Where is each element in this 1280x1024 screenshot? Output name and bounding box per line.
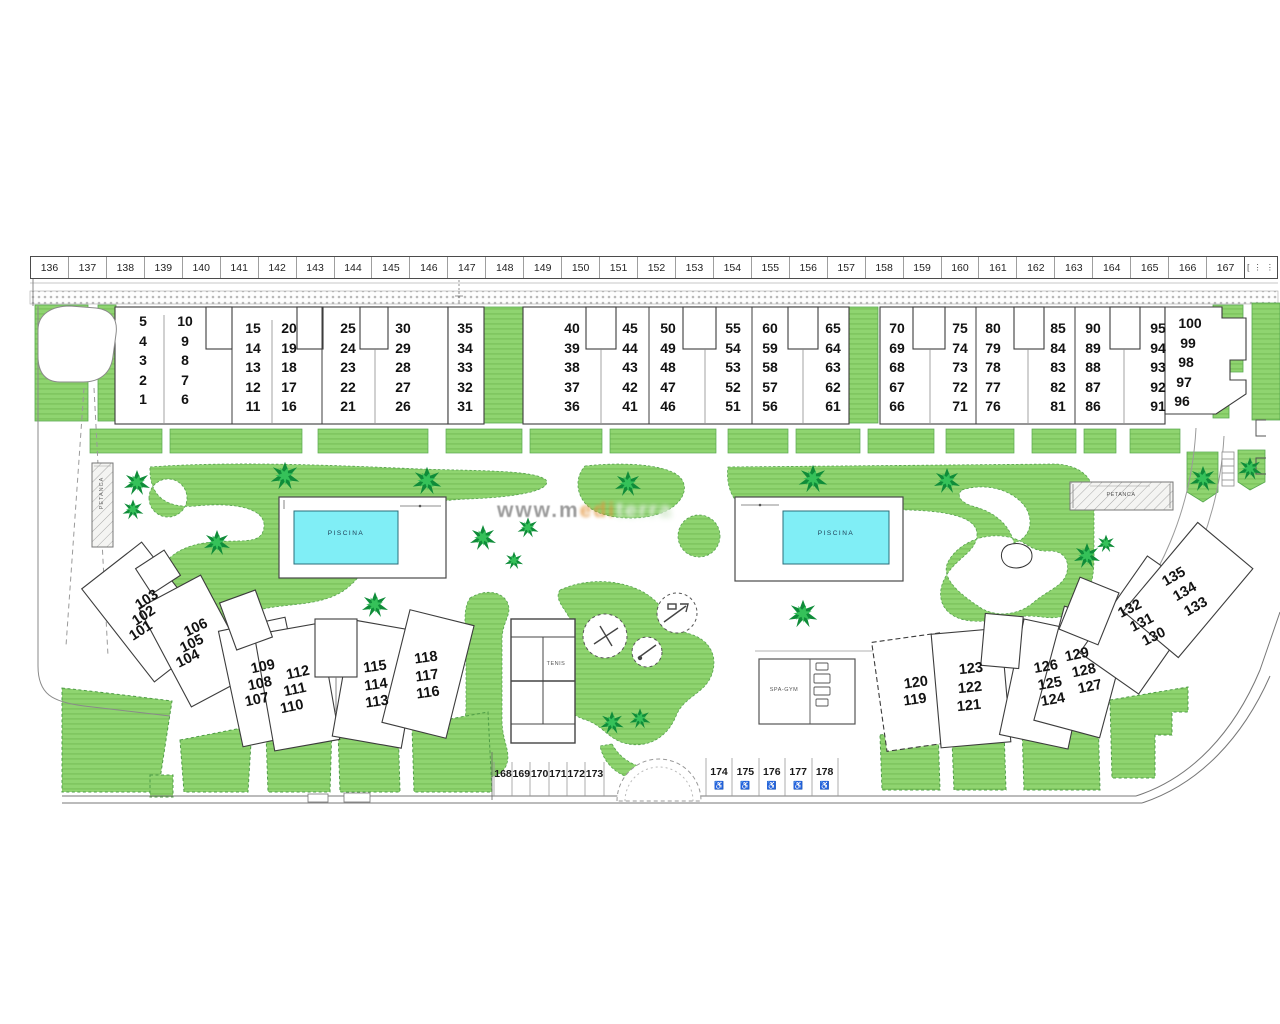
plot-number: 64 (813, 339, 853, 359)
plot-number: 9 (165, 332, 205, 352)
plot-number: 70 (877, 319, 917, 339)
plot-number: 42 (610, 378, 650, 398)
petanca-left-label: PETANCA (99, 458, 105, 528)
tennis-label: TENIS (531, 661, 581, 667)
ruler-cell: 144 (335, 257, 373, 278)
ruler-cell: 141 (221, 257, 259, 278)
ruler-end-marks: [ ⋮ ⋮ (1245, 256, 1278, 279)
plot-number-column: 6564636261 (813, 319, 853, 417)
plot-number: 87 (1073, 378, 1113, 398)
plot-number: 14 (233, 339, 273, 359)
ruler-cell: 149 (524, 257, 562, 278)
ruler-cell: 161 (979, 257, 1017, 278)
ruler-cell: 165 (1131, 257, 1169, 278)
site-plan-page: 1361371381391401411421431441451461471481… (0, 0, 1280, 1024)
plot-number: 54 (713, 339, 753, 359)
plot-number: 97 (1158, 373, 1210, 393)
plot-number: 96 (1154, 392, 1210, 412)
plot-number: 13 (233, 358, 273, 378)
plot-number: 68 (877, 358, 917, 378)
plot-number: 16 (269, 397, 309, 417)
plot-number-column: 3534333231 (445, 319, 485, 417)
plot-number: 15 (233, 319, 273, 339)
text-layer: 1361371381391401411421431441451461471481… (0, 0, 1280, 1024)
plot-number: 57 (750, 378, 790, 398)
ruler-cell: 155 (752, 257, 790, 278)
plot-number: 1 (123, 390, 163, 410)
plot-number-column: 1514131211 (233, 319, 273, 417)
plot-number: 10 (165, 312, 205, 332)
plot-number-column: 6059585756 (750, 319, 790, 417)
plot-number-column: 8079787776 (973, 319, 1013, 417)
plot-number: 33 (445, 358, 485, 378)
plot-number: 8 (165, 351, 205, 371)
watermark-part2: edi (580, 499, 616, 522)
plot-number: 49 (648, 339, 688, 359)
plot-number: 36 (552, 397, 592, 417)
plot-number: 61 (813, 397, 853, 417)
plot-number: 47 (648, 378, 688, 398)
plot-number: 7 (165, 371, 205, 391)
ruler-cell: 158 (866, 257, 904, 278)
parking-number: 177 (785, 766, 811, 778)
ruler-cell: 137 (69, 257, 107, 278)
plot-number-column: 9089888786 (1073, 319, 1113, 417)
plot-number: 19 (269, 339, 309, 359)
plot-number-column: 5049484746 (648, 319, 688, 417)
plot-number-column: 8584838281 (1038, 319, 1078, 417)
fan-plot-number: 121 (946, 696, 991, 717)
ruler-cell: 139 (145, 257, 183, 278)
ruler-cell: 152 (638, 257, 676, 278)
plot-number: 82 (1038, 378, 1078, 398)
plot-number: 45 (610, 319, 650, 339)
parking-number: 178 (812, 766, 838, 778)
plot-number: 66 (877, 397, 917, 417)
plot-number-column: 54321 (123, 312, 163, 410)
plot-number-column: 109876 (165, 312, 205, 410)
parking-number: 168 (493, 768, 513, 780)
ruler-cell: 159 (904, 257, 942, 278)
wheelchair-icon: ♿ (785, 781, 811, 790)
ruler-cell: 143 (297, 257, 335, 278)
plot-number: 30 (383, 319, 423, 339)
plot-number: 83 (1038, 358, 1078, 378)
plot-number: 18 (269, 358, 309, 378)
plot-number: 52 (713, 378, 753, 398)
plot-number: 62 (813, 378, 853, 398)
pool-left-label: PISCINA (296, 530, 396, 537)
plot-number: 99 (1166, 334, 1210, 354)
fan-plot-number: 123 (948, 659, 993, 680)
plot-number: 88 (1073, 358, 1113, 378)
plot-number: 27 (383, 378, 423, 398)
ruler-cell: 150 (562, 257, 600, 278)
plot-number: 98 (1162, 353, 1210, 373)
parking-number: 173 (585, 768, 605, 780)
wheelchair-icon: ♿ (732, 781, 758, 790)
plot-number: 34 (445, 339, 485, 359)
plot-number: 86 (1073, 397, 1113, 417)
ruler-cell: 153 (676, 257, 714, 278)
plot-number: 26 (383, 397, 423, 417)
ruler-cell: 138 (107, 257, 145, 278)
plot-number: 85 (1038, 319, 1078, 339)
watermark: www.mediterra (497, 499, 673, 523)
plot-number-column: 2019181716 (269, 319, 309, 417)
plot-number: 48 (648, 358, 688, 378)
plot-number: 20 (269, 319, 309, 339)
plot-number: 77 (973, 378, 1013, 398)
parking-number: 170 (530, 768, 550, 780)
plot-number: 81 (1038, 397, 1078, 417)
plot-number-column: 3029282726 (383, 319, 423, 417)
ruler-cell: 147 (448, 257, 486, 278)
plot-number: 90 (1073, 319, 1113, 339)
spa-gym-label: SPA-GYM (758, 687, 810, 693)
parking-number: 169 (511, 768, 531, 780)
ruler-cell: 167 (1207, 257, 1244, 278)
parking-number: 175 (732, 766, 758, 778)
plot-number: 41 (610, 397, 650, 417)
ruler-cell: 166 (1169, 257, 1207, 278)
plot-number: 80 (973, 319, 1013, 339)
ruler-cell: 140 (183, 257, 221, 278)
plot-number-column: 5554535251 (713, 319, 753, 417)
ruler-cell: 146 (410, 257, 448, 278)
plot-number: 17 (269, 378, 309, 398)
parking-number: 174 (706, 766, 732, 778)
plot-number: 67 (877, 378, 917, 398)
plot-number: 63 (813, 358, 853, 378)
plot-number: 79 (973, 339, 1013, 359)
ruler-cell: 163 (1055, 257, 1093, 278)
plot-number: 39 (552, 339, 592, 359)
plot-number: 60 (750, 319, 790, 339)
plot-number-column: 10099989796 (1170, 314, 1210, 412)
plot-number: 28 (383, 358, 423, 378)
plot-number: 25 (328, 319, 368, 339)
ruler-cell: 151 (600, 257, 638, 278)
petanca-right-label: PETANCA (1071, 492, 1171, 498)
ruler-cell: 164 (1093, 257, 1131, 278)
ruler-cell: 157 (828, 257, 866, 278)
plot-number: 40 (552, 319, 592, 339)
pool-right-label: PISCINA (786, 530, 886, 537)
plot-number: 29 (383, 339, 423, 359)
plot-number: 37 (552, 378, 592, 398)
ruler-cell: 154 (714, 257, 752, 278)
plot-number: 32 (445, 378, 485, 398)
ruler-cell: 160 (942, 257, 980, 278)
parking-number: 176 (759, 766, 785, 778)
plot-number: 46 (648, 397, 688, 417)
plot-number-column: 7069686766 (877, 319, 917, 417)
plot-number: 12 (233, 378, 273, 398)
plot-number: 51 (713, 397, 753, 417)
plot-number: 65 (813, 319, 853, 339)
plot-number-column: 4544434241 (610, 319, 650, 417)
plot-number: 3 (123, 351, 163, 371)
plot-number: 56 (750, 397, 790, 417)
watermark-part3: terra (616, 499, 673, 522)
plot-number: 43 (610, 358, 650, 378)
plot-number: 53 (713, 358, 753, 378)
plot-ruler: 1361371381391401411421431441451461471481… (30, 256, 1245, 279)
plot-number: 38 (552, 358, 592, 378)
plot-number: 22 (328, 378, 368, 398)
ruler-cell: 142 (259, 257, 297, 278)
parking-number: 171 (548, 768, 568, 780)
plot-number: 69 (877, 339, 917, 359)
parking-number: 172 (566, 768, 586, 780)
plot-number: 11 (233, 397, 273, 417)
plot-number: 21 (328, 397, 368, 417)
plot-number: 24 (328, 339, 368, 359)
plot-number: 31 (445, 397, 485, 417)
ruler-cell: 162 (1017, 257, 1055, 278)
plot-number-column: 2524232221 (328, 319, 368, 417)
plot-number: 23 (328, 358, 368, 378)
plot-number: 78 (973, 358, 1013, 378)
plot-number: 89 (1073, 339, 1113, 359)
plot-number: 50 (648, 319, 688, 339)
plot-number: 100 (1170, 314, 1210, 334)
ruler-cell: 148 (486, 257, 524, 278)
ruler-cell: 136 (31, 257, 69, 278)
fan-plot-number: 122 (947, 677, 992, 698)
plot-number: 35 (445, 319, 485, 339)
plot-number: 44 (610, 339, 650, 359)
plot-number-column: 4039383736 (552, 319, 592, 417)
ruler-cell: 145 (372, 257, 410, 278)
wheelchair-icon: ♿ (706, 781, 732, 790)
ruler-cell: 156 (790, 257, 828, 278)
plot-number: 6 (165, 390, 205, 410)
plot-number: 55 (713, 319, 753, 339)
plot-number: 76 (973, 397, 1013, 417)
plot-number: 58 (750, 358, 790, 378)
wheelchair-icon: ♿ (759, 781, 785, 790)
wheelchair-icon: ♿ (812, 781, 838, 790)
plot-number: 5 (123, 312, 163, 332)
plot-number: 84 (1038, 339, 1078, 359)
watermark-part1: www.m (497, 499, 580, 522)
plot-number: 4 (123, 332, 163, 352)
plot-number: 59 (750, 339, 790, 359)
plot-number: 2 (123, 371, 163, 391)
